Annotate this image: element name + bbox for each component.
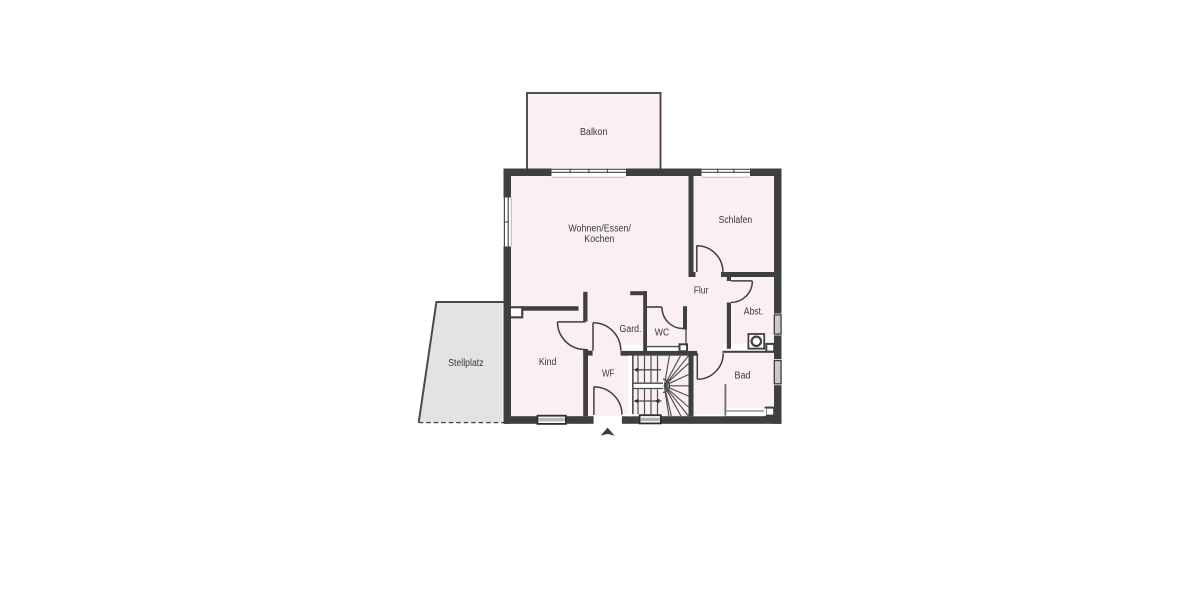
svg-text:Kind: Kind [539, 357, 557, 368]
svg-text:Schlafen: Schlafen [719, 215, 753, 226]
svg-text:Kochen: Kochen [584, 234, 614, 245]
svg-text:Bad: Bad [735, 371, 751, 382]
svg-text:WC: WC [655, 327, 670, 338]
svg-text:Abst.: Abst. [744, 306, 764, 317]
svg-text:Stellplatz: Stellplatz [448, 358, 483, 369]
svg-text:WF: WF [602, 368, 615, 379]
svg-text:Balkon: Balkon [580, 127, 608, 138]
svg-text:Gard.: Gard. [620, 324, 642, 335]
svg-text:Flur: Flur [694, 286, 709, 297]
